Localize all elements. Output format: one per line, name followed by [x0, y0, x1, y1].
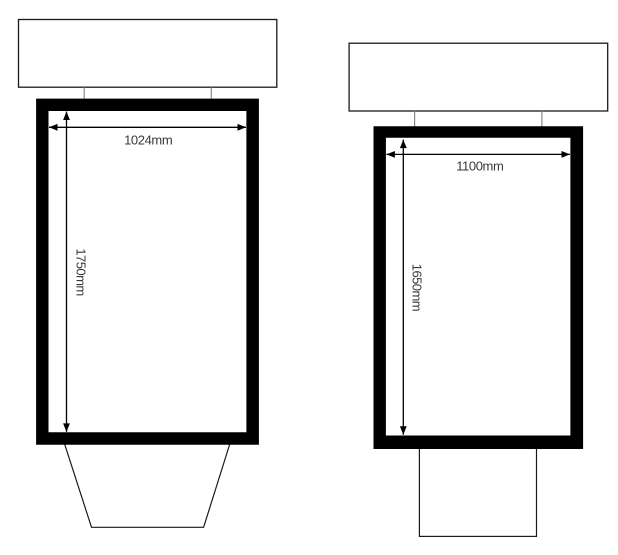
svg-text:1650mm: 1650mm — [410, 264, 425, 311]
svg-text:1750mm: 1750mm — [73, 248, 88, 295]
svg-text:1024mm: 1024mm — [124, 133, 172, 148]
svg-text:1100mm: 1100mm — [456, 159, 503, 174]
